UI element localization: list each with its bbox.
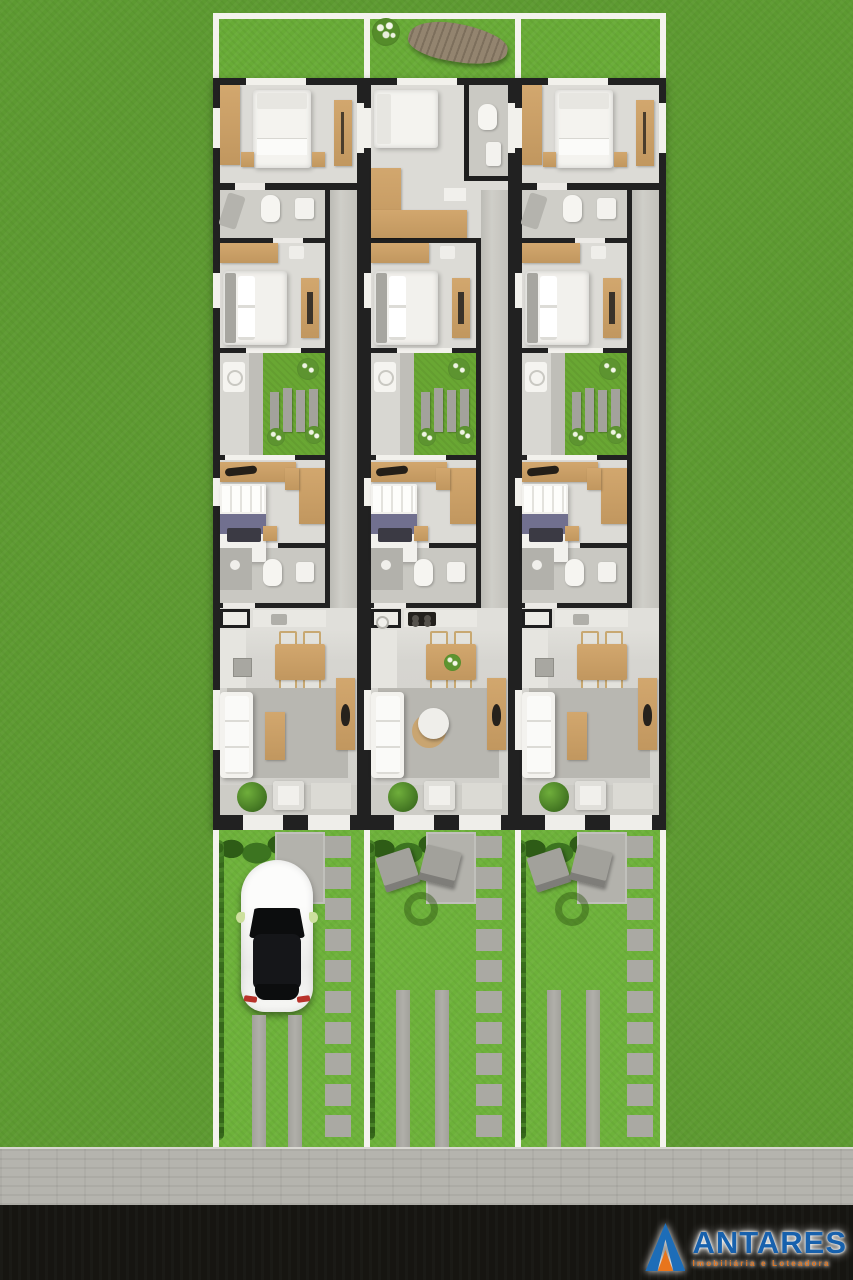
- unit-1-window-left: [213, 108, 220, 148]
- unit-2-door-gap: [374, 603, 406, 608]
- unit-2-window-top: [397, 78, 457, 85]
- unit-3-console-table: [638, 678, 657, 750]
- unit-3-driveway-track: [547, 990, 561, 1147]
- unit-1-shower: [220, 548, 252, 590]
- unit-3-driveway-track: [586, 990, 600, 1147]
- unit-2-front-yard: [364, 830, 515, 1147]
- units-layer: [0, 0, 853, 1280]
- unit-3-stepping-stones: [627, 836, 653, 1137]
- unit-3-coffee-table: [567, 712, 587, 760]
- unit-2-dresser: [444, 188, 466, 201]
- unit-2-garden-paver: [460, 389, 469, 429]
- unit-2-stool: [440, 246, 455, 259]
- unit-1-wardrobe: [285, 468, 299, 490]
- unit-1-driveway-track: [252, 1015, 266, 1147]
- unit-1-patio-walkway-shade: [249, 353, 263, 455]
- unit-1-washing-machine: [223, 362, 245, 392]
- unit-3-wardrobe: [587, 468, 601, 490]
- lot-divider-line: [660, 830, 666, 1147]
- unit-1-toilet: [263, 559, 282, 586]
- unit-2-front-door: [394, 815, 434, 830]
- lot-divider-line: [364, 830, 370, 1147]
- unit-2-washing-machine: [374, 362, 396, 392]
- car-mirror: [236, 912, 245, 923]
- unit-3-patio-walkway-shade: [551, 353, 565, 455]
- unit-1-double-bed: [223, 271, 287, 345]
- unit-3-window-right: [659, 103, 666, 153]
- car-mirror: [309, 912, 318, 923]
- unit-1-window-top: [246, 78, 306, 85]
- unit-3-window-left: [515, 478, 522, 506]
- unit-2-double-bed: [374, 90, 438, 148]
- unit-3-window-left: [515, 108, 522, 148]
- unit-3: [515, 78, 666, 830]
- unit-3-kitchen-counter: [555, 610, 628, 627]
- site-plan-canvas: ANTARES Imobiliária e Loteadora: [0, 0, 853, 1280]
- unit-1-front-window: [308, 815, 350, 830]
- unit-3-garden-plant: [599, 358, 621, 380]
- unit-3-nightstand: [614, 152, 627, 167]
- unit-3-dining-table: [577, 644, 627, 680]
- unit-3-kitchen-cabinet: [522, 609, 552, 628]
- unit-2-double-bed: [374, 271, 438, 345]
- unit-1-garden-plant: [267, 428, 285, 446]
- unit-2-driveway-track: [396, 990, 410, 1147]
- unit-1-door-gap: [246, 348, 301, 353]
- unit-3-porch-plant: [539, 782, 569, 812]
- unit-1-stool: [289, 246, 304, 259]
- unit-2-console-table: [487, 678, 506, 750]
- unit-2-tv-cabinet: [452, 278, 470, 338]
- unit-2-wardrobe: [450, 468, 476, 524]
- unit-1-sink: [295, 198, 314, 219]
- unit-2-stepping-stones: [476, 836, 502, 1137]
- unit-2-sink: [486, 142, 501, 166]
- unit-1-armchair: [273, 781, 304, 810]
- unit-2-door-gap: [376, 455, 446, 460]
- unit-3-porch-paver: [613, 783, 653, 809]
- unit-3-wardrobe: [522, 243, 580, 263]
- unit-1-garden-paver: [270, 392, 279, 432]
- unit-3-rug: [529, 528, 563, 542]
- unit-1-coffee-table: [265, 712, 285, 760]
- unit-3-wood-floor-strip: [522, 85, 542, 165]
- unit-1-garden-plant: [297, 358, 319, 380]
- unit-2-sink: [447, 562, 465, 582]
- unit-3-armchair: [575, 781, 606, 810]
- unit-2-window-left: [364, 690, 371, 750]
- unit-1-window-right: [357, 103, 364, 153]
- brand-logo: ANTARES Imobiliária e Loteadora: [645, 1218, 847, 1276]
- unit-1-porch-paver: [311, 783, 351, 809]
- unit-1-driveway-track: [288, 1015, 302, 1147]
- unit-2-window-left: [364, 273, 371, 308]
- unit-3-sofa: [522, 692, 555, 778]
- unit-3-toilet: [565, 559, 584, 586]
- unit-2-garden-paver: [434, 388, 443, 432]
- unit-1-nightstand: [241, 152, 254, 167]
- unit-3-door-gap: [525, 603, 557, 608]
- unit-3-door-gap: [527, 455, 597, 460]
- unit-2-garden-plant: [448, 358, 470, 380]
- unit-2: [364, 78, 515, 830]
- unit-1-garden-paver: [283, 388, 292, 432]
- unit-1-door-gap: [225, 455, 295, 460]
- unit-3-front-door: [545, 815, 585, 830]
- unit-3-double-bed: [555, 90, 613, 168]
- unit-1-parked-car: [241, 860, 313, 1012]
- unit-3-toilet: [563, 195, 582, 222]
- unit-1-window-left: [213, 690, 220, 750]
- unit-1-door-gap: [223, 603, 255, 608]
- unit-1-wardrobe: [299, 468, 325, 524]
- unit-3-nightstand: [543, 152, 556, 167]
- unit-1-tv-cabinet: [301, 278, 319, 338]
- unit-3-front-yard: [515, 830, 666, 1147]
- logo-text: ANTARES Imobiliária e Loteadora: [692, 1227, 847, 1268]
- unit-1-front-door: [243, 815, 283, 830]
- unit-1-garden-plant: [305, 426, 323, 444]
- unit-1-dining-table: [275, 644, 325, 680]
- unit-1-stepping-stones: [325, 836, 351, 1137]
- unit-3-wardrobe: [636, 100, 654, 166]
- unit-3-garden-plant: [607, 426, 625, 444]
- unit-3-stool: [591, 246, 606, 259]
- unit-1-window-left: [213, 478, 220, 506]
- unit-1-side-passage: [330, 190, 357, 623]
- unit-3-door-gap: [548, 348, 603, 353]
- unit-3-window-left: [515, 273, 522, 308]
- unit-2-door-gap: [397, 348, 452, 353]
- unit-3-sink: [598, 562, 616, 582]
- car-roof: [253, 934, 301, 990]
- unit-2-patio-walkway-shade: [400, 353, 414, 455]
- unit-3-window-left: [515, 690, 522, 750]
- unit-2-window-right: [508, 103, 515, 153]
- unit-1-garden-paver: [296, 390, 305, 432]
- unit-2-porch-paver: [462, 783, 502, 809]
- unit-2-stool: [414, 526, 428, 541]
- unit-3-washing-machine: [525, 362, 547, 392]
- unit-1-toilet: [261, 195, 280, 222]
- unit-1-stove: [233, 658, 252, 677]
- unit-1-kitchen-counter: [253, 610, 326, 627]
- lot-divider-line: [213, 830, 219, 1147]
- unit-3-wardrobe: [601, 468, 627, 524]
- unit-3-door-gap: [537, 183, 567, 190]
- unit-3-garden-plant: [569, 428, 587, 446]
- unit-1-front-yard: [213, 830, 364, 1147]
- unit-1-nightstand: [312, 152, 325, 167]
- unit-2-garden-ring: [404, 892, 438, 926]
- lot-divider-line: [515, 830, 521, 1147]
- unit-2-porch-plant: [388, 782, 418, 812]
- unit-3-garden-ring: [555, 892, 589, 926]
- brand-tagline: Imobiliária e Loteadora: [692, 1260, 847, 1268]
- sidewalk: [0, 1147, 853, 1205]
- unit-3-garden-paver: [611, 389, 620, 429]
- unit-1-door-gap: [235, 183, 265, 190]
- unit-3-garden-paver: [598, 390, 607, 432]
- unit-1-garden-paver: [309, 389, 318, 429]
- unit-1-kitchen-cabinet: [220, 609, 250, 628]
- unit-2-front-window: [459, 815, 501, 830]
- unit-3-garden-paver: [572, 392, 581, 432]
- unit-2-round-coffee-table: [418, 708, 449, 739]
- unit-2-sofa: [371, 692, 404, 778]
- unit-2-driveway-track: [435, 990, 449, 1147]
- unit-1-window-left: [213, 273, 220, 308]
- unit-3-garden-paver: [585, 388, 594, 432]
- unit-2-wardrobe: [436, 468, 450, 490]
- unit-2-window-left: [364, 108, 371, 148]
- triangle-a-icon: [645, 1223, 685, 1271]
- unit-1: [213, 78, 364, 830]
- unit-3-window-top: [548, 78, 608, 85]
- unit-2-wardrobe: [371, 243, 429, 263]
- unit-3-sink: [597, 198, 616, 219]
- unit-2-toilet: [478, 104, 497, 130]
- unit-2-side-passage: [481, 190, 508, 623]
- car-rear-window: [255, 984, 299, 1000]
- unit-2-ensuite-floor: [464, 85, 508, 181]
- unit-3-double-bed: [525, 271, 589, 345]
- unit-1-sofa: [220, 692, 253, 778]
- unit-2-shower: [371, 548, 403, 590]
- unit-1-stool: [263, 526, 277, 541]
- unit-2-garden-plant: [418, 428, 436, 446]
- unit-2-wood-floor: [371, 210, 467, 238]
- unit-1-sink: [296, 562, 314, 582]
- unit-1-wardrobe: [334, 100, 352, 166]
- unit-1-double-bed: [253, 90, 311, 168]
- unit-3-side-passage: [632, 190, 659, 623]
- unit-2-garden-paver: [447, 390, 456, 432]
- unit-2-rug: [378, 528, 412, 542]
- unit-3-front-window: [610, 815, 652, 830]
- unit-1-porch-plant: [237, 782, 267, 812]
- brand-name: ANTARES: [692, 1227, 847, 1258]
- unit-2-table-plant: [444, 654, 461, 671]
- unit-2-garden-plant: [456, 426, 474, 444]
- unit-2-cooktop: [408, 612, 436, 626]
- unit-2-toilet: [414, 559, 433, 586]
- unit-3-tv-cabinet: [603, 278, 621, 338]
- unit-1-console-table: [336, 678, 355, 750]
- unit-2-window-left: [364, 478, 371, 506]
- unit-2-garden-paver: [421, 392, 430, 432]
- unit-1-wood-floor-strip: [220, 85, 240, 165]
- unit-3-kitchen-sink: [573, 614, 589, 625]
- unit-3-stove: [535, 658, 554, 677]
- unit-1-wardrobe: [220, 243, 278, 263]
- unit-1-rug: [227, 528, 261, 542]
- unit-2-kitchen-counter: [371, 630, 397, 688]
- unit-3-shower: [522, 548, 554, 590]
- unit-2-ceiling-fan: [376, 616, 389, 629]
- unit-1-kitchen-sink: [271, 614, 287, 625]
- unit-3-stool: [565, 526, 579, 541]
- unit-2-armchair: [424, 781, 455, 810]
